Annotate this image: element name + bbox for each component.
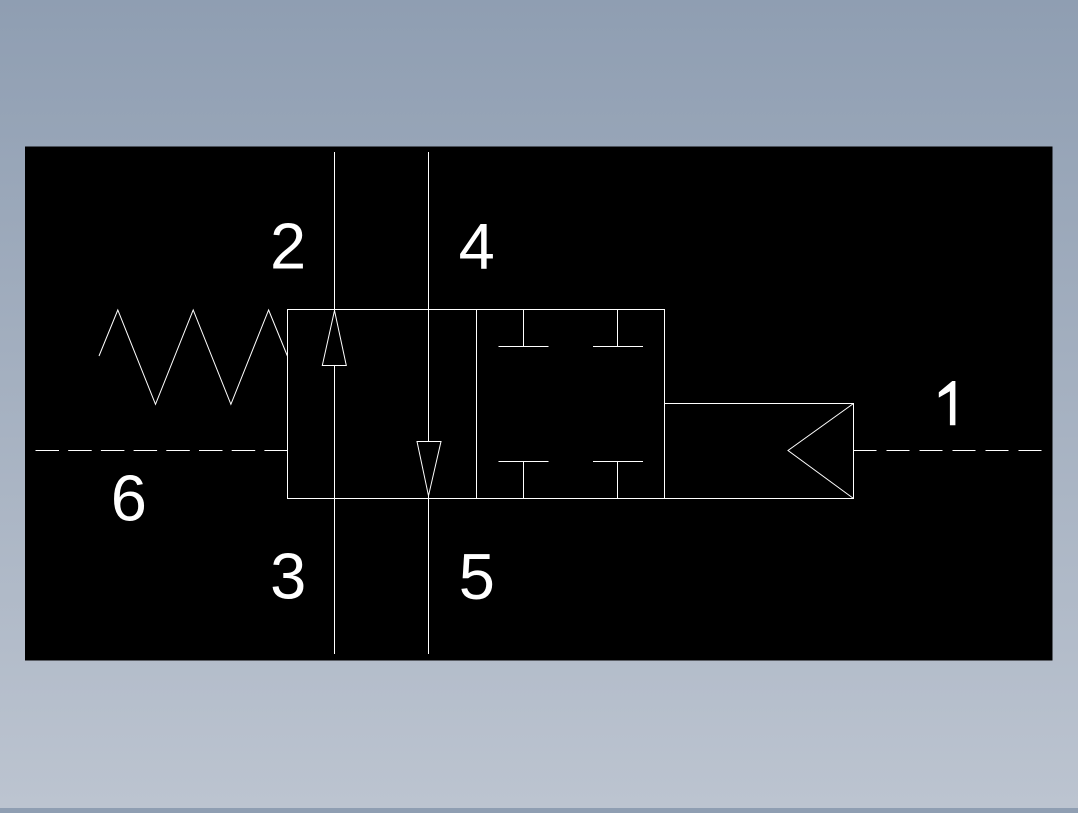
svg-text:6: 6 (111, 461, 147, 534)
svg-text:4: 4 (459, 210, 495, 283)
svg-text:2: 2 (270, 210, 306, 283)
svg-text:5: 5 (459, 540, 495, 613)
svg-text:3: 3 (270, 540, 306, 613)
